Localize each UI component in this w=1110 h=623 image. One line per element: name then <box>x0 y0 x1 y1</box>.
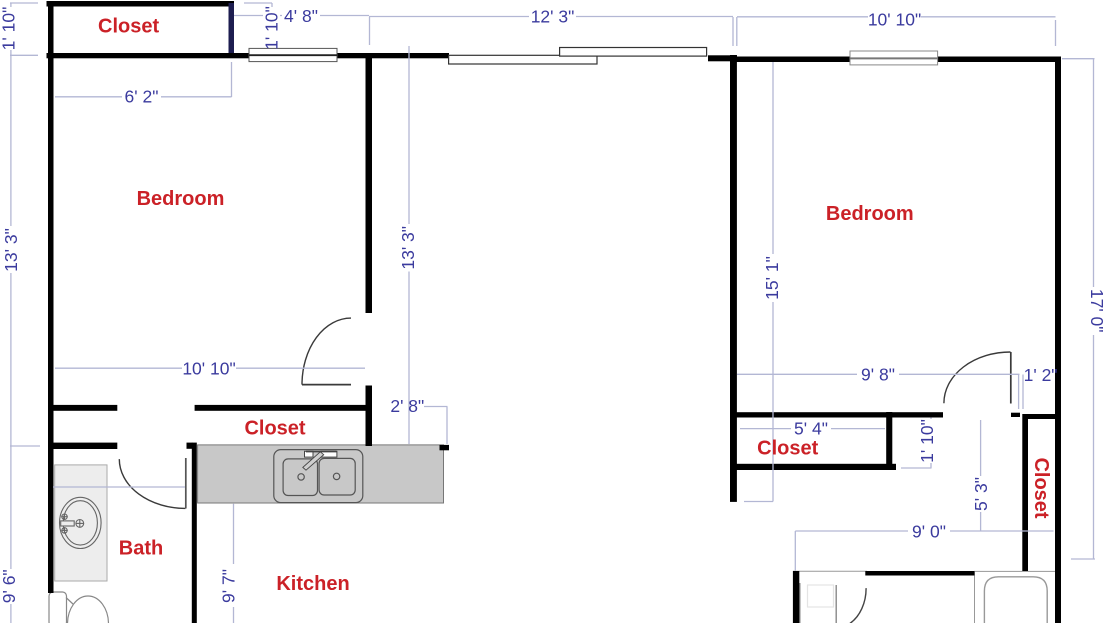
svg-text:1' 2": 1' 2" <box>1024 365 1058 385</box>
svg-text:10' 10": 10' 10" <box>868 10 921 30</box>
svg-text:5' 3": 5' 3" <box>971 477 991 511</box>
svg-text:Closet: Closet <box>98 16 159 38</box>
svg-text:17' 0": 17' 0" <box>1087 289 1107 333</box>
svg-text:5' 4": 5' 4" <box>794 419 828 439</box>
svg-text:9' 7": 9' 7" <box>219 569 239 603</box>
svg-text:1' 10": 1' 10" <box>262 6 282 50</box>
svg-text:13' 3": 13' 3" <box>398 226 418 270</box>
svg-text:2' 8": 2' 8" <box>390 396 424 416</box>
svg-text:Closet: Closet <box>244 418 305 440</box>
svg-text:Bedroom: Bedroom <box>826 203 914 225</box>
svg-text:10' 10": 10' 10" <box>182 359 235 379</box>
svg-text:15' 1": 15' 1" <box>762 256 782 300</box>
svg-text:1' 10": 1' 10" <box>917 419 937 463</box>
svg-text:12' 3": 12' 3" <box>531 7 575 27</box>
svg-text:Closet: Closet <box>757 438 818 460</box>
svg-text:Bath: Bath <box>119 538 163 560</box>
svg-text:Bedroom: Bedroom <box>137 188 225 210</box>
svg-text:13' 3": 13' 3" <box>1 228 21 272</box>
svg-text:1' 10": 1' 10" <box>0 7 19 51</box>
svg-text:6' 2": 6' 2" <box>125 87 159 107</box>
svg-text:9' 8": 9' 8" <box>861 365 895 385</box>
svg-text:Closet: Closet <box>1030 457 1052 518</box>
svg-text:9' 6": 9' 6" <box>0 569 19 603</box>
svg-text:Kitchen: Kitchen <box>276 573 349 595</box>
svg-text:4' 8": 4' 8" <box>284 6 318 26</box>
svg-text:9' 0": 9' 0" <box>912 521 946 541</box>
